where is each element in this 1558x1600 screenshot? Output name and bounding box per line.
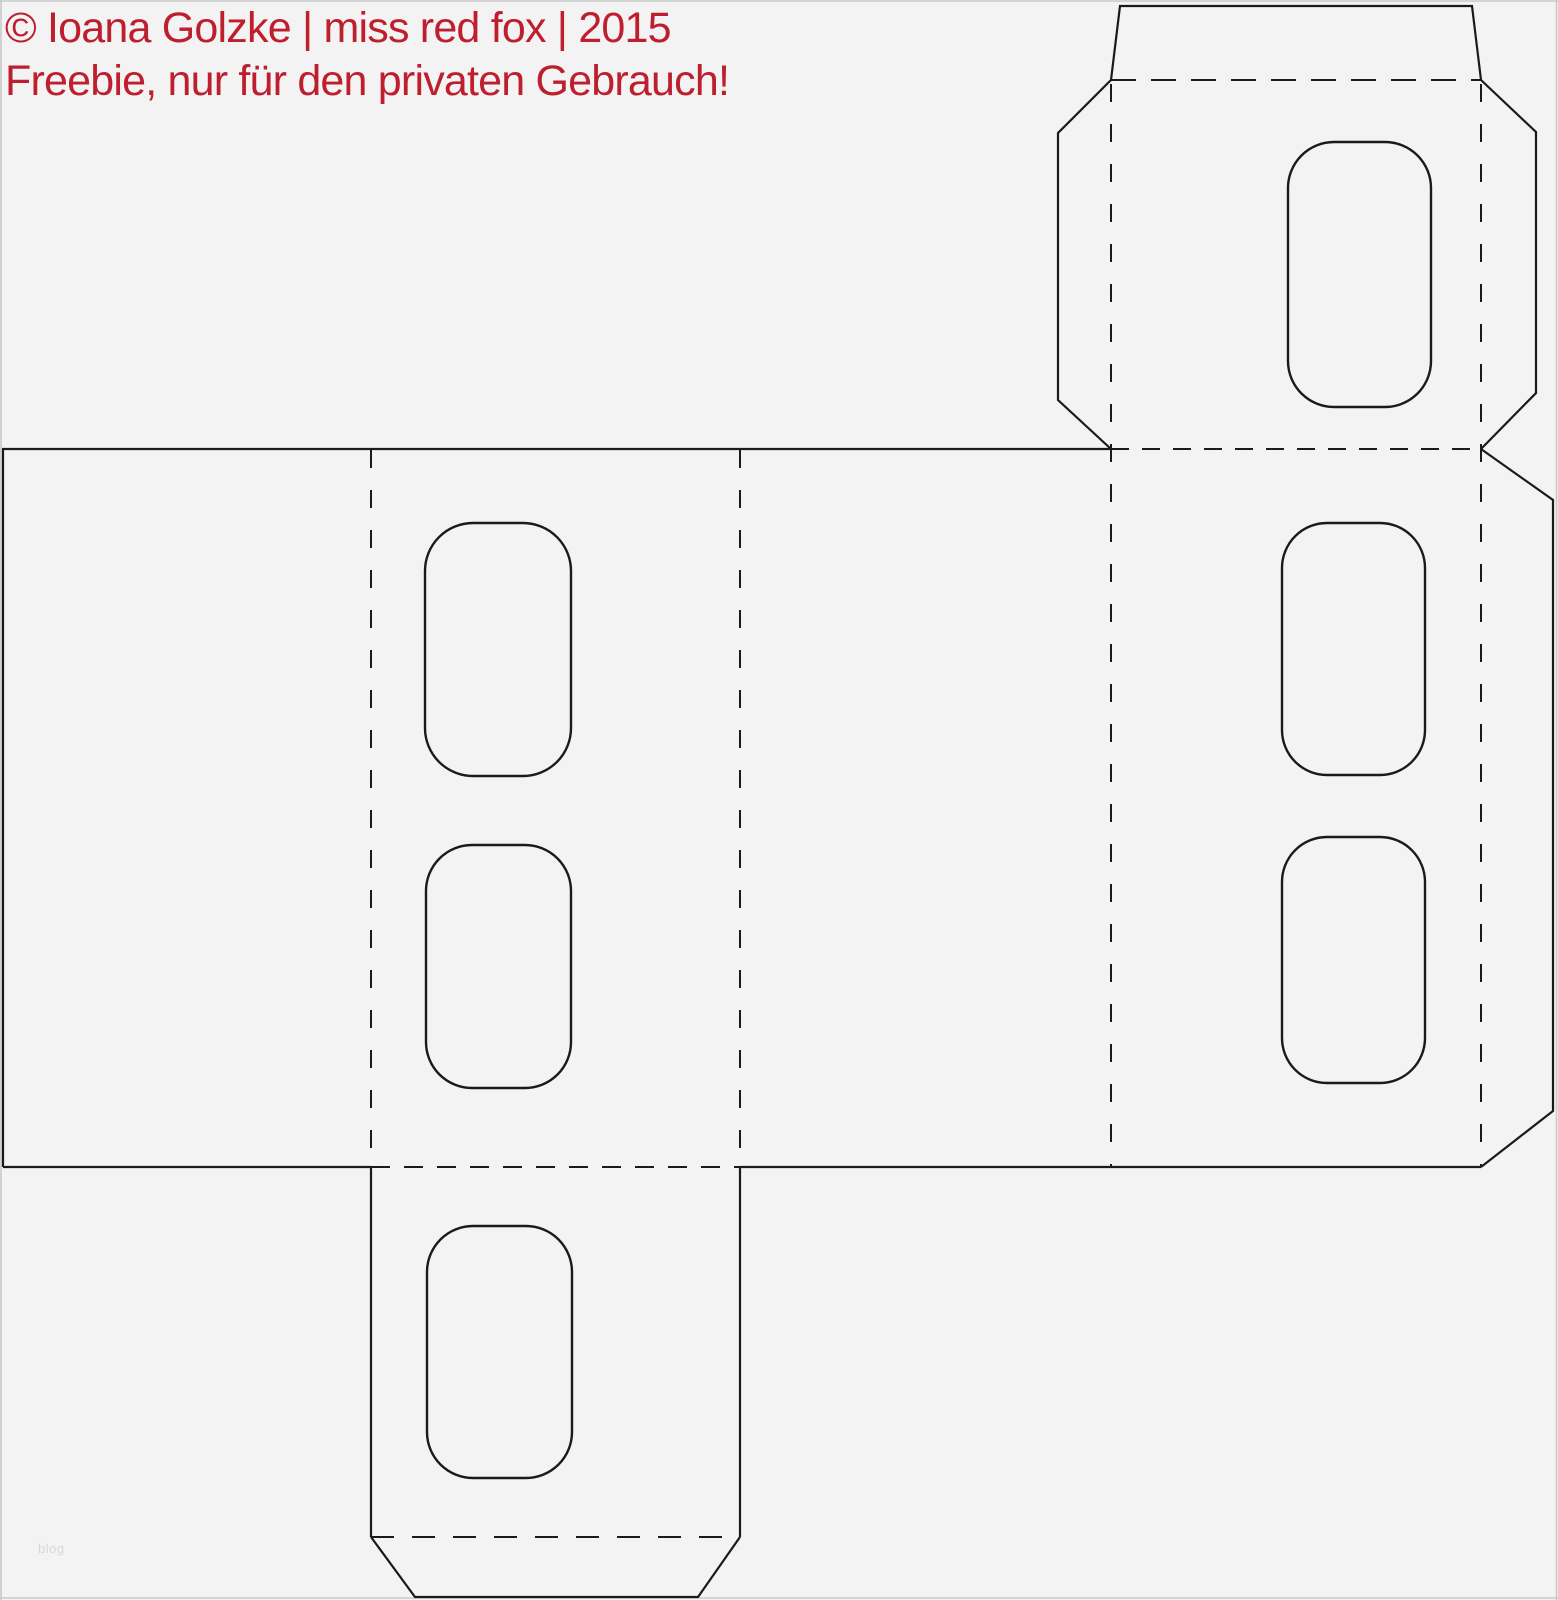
panel2-upper-window-cutout xyxy=(425,523,571,776)
template-canvas: © Ioana Golzke | miss red fox | 2015 Fre… xyxy=(0,0,1558,1600)
copyright-line1: © Ioana Golzke | miss red fox | 2015 xyxy=(5,3,671,54)
lid-panel-right-cut xyxy=(1481,80,1536,449)
watermark-text: blog xyxy=(38,1541,65,1556)
bottom-flap-tip-cut xyxy=(371,1537,740,1597)
box-template-svg xyxy=(0,0,1558,1600)
lid-window-cutout xyxy=(1288,142,1431,407)
copyright-line2: Freebie, nur für den privaten Gebrauch! xyxy=(5,56,729,107)
lid-panel-left-cut xyxy=(1058,80,1111,449)
right-glue-flap-cut xyxy=(1481,449,1553,1167)
top-glue-flap-cut xyxy=(1111,6,1481,80)
panel2-lower-window-cutout xyxy=(426,845,571,1088)
panel4-lower-window-cutout xyxy=(1282,837,1425,1083)
panel4-upper-window-cutout xyxy=(1282,523,1425,775)
bottomflap-window-cutout xyxy=(427,1226,572,1478)
